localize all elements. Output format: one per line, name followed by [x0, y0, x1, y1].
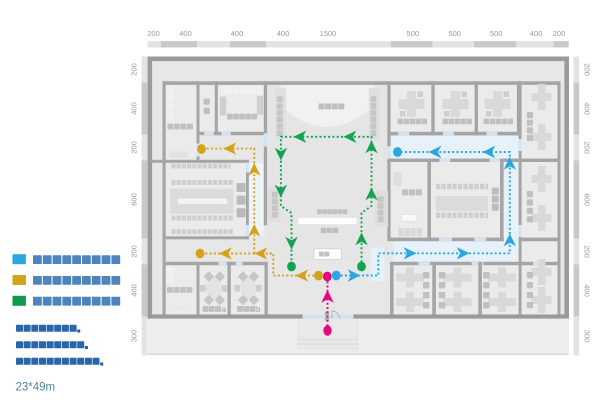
svg-text:200: 200	[583, 245, 592, 258]
svg-text:600: 600	[130, 193, 139, 206]
svg-text:400: 400	[130, 102, 139, 115]
svg-text:a: a	[222, 305, 227, 314]
svg-text:600: 600	[583, 193, 592, 206]
svg-text:200: 200	[583, 63, 592, 76]
svg-text:23*49m: 23*49m	[16, 382, 56, 394]
svg-text:400: 400	[130, 284, 139, 297]
svg-text:500: 500	[407, 29, 420, 38]
svg-text:400: 400	[231, 29, 244, 38]
svg-text:200: 200	[553, 29, 566, 38]
svg-text:b: b	[256, 305, 261, 314]
svg-text:400: 400	[277, 29, 290, 38]
svg-text:500: 500	[490, 29, 503, 38]
svg-text:200: 200	[147, 29, 160, 38]
svg-text:200: 200	[130, 141, 139, 154]
svg-text:500: 500	[448, 29, 461, 38]
svg-text:200: 200	[130, 63, 139, 76]
svg-text:200: 200	[583, 141, 592, 154]
svg-text:400: 400	[583, 102, 592, 115]
svg-text:400: 400	[530, 29, 543, 38]
svg-text:400: 400	[583, 284, 592, 297]
svg-text:300: 300	[130, 330, 139, 343]
svg-text:1500: 1500	[320, 29, 337, 38]
svg-text:200: 200	[130, 245, 139, 258]
svg-text:400: 400	[179, 29, 192, 38]
svg-text:300: 300	[583, 330, 592, 343]
